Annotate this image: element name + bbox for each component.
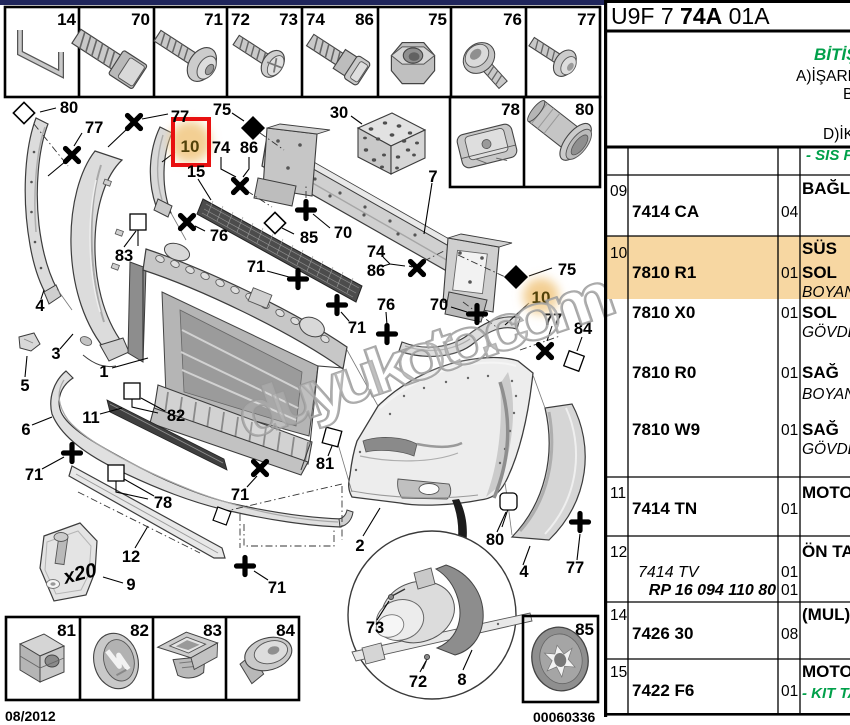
svg-text:01: 01: [781, 501, 798, 518]
svg-text:SAĞ: SAĞ: [802, 363, 839, 382]
svg-text:08: 08: [781, 626, 798, 643]
svg-text:01: 01: [781, 564, 798, 581]
svg-text:BO: BO: [843, 86, 850, 103]
svg-text:7414 CA: 7414 CA: [632, 202, 699, 221]
svg-text:GÖVDE RE: GÖVDE RE: [802, 440, 850, 458]
svg-text:74: 74: [212, 139, 231, 157]
svg-text:30: 30: [330, 104, 348, 122]
svg-text:U9F 7 74A 01A: U9F 7 74A 01A: [611, 3, 770, 29]
svg-text:14: 14: [610, 607, 628, 624]
svg-text:2: 2: [355, 537, 364, 555]
svg-text:A)İŞARET: A)İŞARET: [796, 67, 850, 85]
svg-text:01: 01: [781, 265, 798, 282]
svg-text:09: 09: [610, 183, 627, 200]
svg-text:77: 77: [85, 119, 103, 137]
svg-text:7810 W9: 7810 W9: [632, 420, 700, 439]
svg-text:73: 73: [366, 619, 384, 637]
svg-text:76: 76: [210, 227, 228, 245]
svg-text:75: 75: [428, 10, 447, 29]
svg-text:86: 86: [240, 139, 258, 157]
svg-text:00060336: 00060336: [533, 709, 596, 725]
svg-text:- SIS FAR: - SIS FAR: [806, 147, 850, 164]
svg-text:- KIT TAK: - KIT TAK: [802, 685, 850, 702]
svg-text:7810 R0: 7810 R0: [632, 363, 696, 382]
svg-text:73: 73: [279, 10, 298, 29]
svg-text:12: 12: [610, 544, 627, 561]
svg-text:80: 80: [486, 531, 504, 549]
svg-text:D)İKK: D)İKK: [823, 125, 850, 143]
svg-text:4: 4: [35, 297, 45, 315]
svg-text:7414 TV: 7414 TV: [638, 564, 700, 581]
svg-text:84: 84: [276, 621, 295, 640]
svg-text:71: 71: [268, 579, 286, 597]
svg-text:71: 71: [247, 258, 265, 276]
svg-text:04: 04: [781, 204, 799, 221]
svg-text:8: 8: [457, 671, 466, 689]
svg-text:85: 85: [300, 229, 318, 247]
svg-text:RP 16 094 110 80: RP 16 094 110 80: [649, 582, 776, 599]
svg-text:83: 83: [115, 247, 133, 265]
svg-text:15: 15: [187, 163, 205, 181]
svg-text:01: 01: [781, 365, 798, 382]
svg-text:SOL: SOL: [802, 303, 837, 322]
svg-text:01: 01: [781, 305, 798, 322]
svg-text:77: 77: [577, 10, 596, 29]
svg-text:GÖVDE RE: GÖVDE RE: [802, 323, 850, 341]
svg-text:70: 70: [334, 224, 352, 242]
svg-text:ÖN TAMPON: ÖN TAMPON: [802, 542, 850, 561]
svg-text:5: 5: [20, 377, 29, 395]
svg-text:78: 78: [154, 494, 172, 512]
svg-text:10: 10: [181, 137, 200, 156]
svg-text:80: 80: [575, 100, 594, 119]
svg-text:82: 82: [167, 407, 185, 425]
svg-text:10: 10: [610, 245, 628, 262]
svg-text:14: 14: [57, 10, 76, 29]
svg-text:72: 72: [231, 10, 250, 29]
svg-text:08/2012: 08/2012: [5, 708, 56, 724]
svg-text:86: 86: [355, 10, 374, 29]
svg-text:SOL: SOL: [802, 263, 837, 282]
svg-text:71: 71: [348, 319, 366, 337]
svg-text:01: 01: [781, 582, 798, 599]
svg-text:11: 11: [610, 485, 626, 502]
svg-text:80: 80: [60, 99, 78, 117]
svg-text:MOTORLU: MOTORLU: [802, 483, 850, 502]
svg-text:83: 83: [203, 621, 222, 640]
svg-text:77: 77: [171, 108, 189, 126]
svg-text:7426 30: 7426 30: [632, 624, 693, 643]
svg-text:SAĞ: SAĞ: [802, 420, 839, 439]
svg-text:77: 77: [566, 559, 584, 577]
svg-text:9: 9: [126, 576, 135, 594]
svg-text:7810 R1: 7810 R1: [632, 263, 696, 282]
svg-text:76: 76: [377, 296, 395, 314]
svg-text:86: 86: [367, 262, 385, 280]
svg-text:(MUL) KA: (MUL) KA: [802, 605, 850, 624]
svg-text:1: 1: [99, 363, 108, 381]
svg-text:75: 75: [213, 101, 231, 119]
svg-text:MOTORLU: MOTORLU: [802, 662, 850, 681]
svg-text:6: 6: [21, 421, 30, 439]
svg-text:7: 7: [428, 168, 437, 186]
svg-text:81: 81: [57, 621, 76, 640]
svg-text:82: 82: [130, 621, 149, 640]
svg-text:72: 72: [409, 673, 427, 691]
svg-text:81: 81: [316, 455, 334, 473]
svg-text:4: 4: [519, 563, 529, 581]
svg-text:70: 70: [131, 10, 150, 29]
svg-text:71: 71: [231, 486, 249, 504]
svg-text:BİTİŞ S: BİTİŞ S: [814, 45, 850, 64]
svg-text:01: 01: [781, 422, 798, 439]
svg-text:SÜS: SÜS: [802, 239, 837, 258]
svg-text:7414 TN: 7414 TN: [632, 499, 697, 518]
svg-text:78: 78: [501, 100, 520, 119]
svg-text:3: 3: [51, 345, 60, 363]
svg-text:12: 12: [122, 548, 140, 566]
svg-text:7422 F6: 7422 F6: [632, 681, 694, 700]
svg-text:76: 76: [503, 10, 522, 29]
svg-text:01: 01: [781, 683, 798, 700]
svg-text:BAĞLANTI: BAĞLANTI: [802, 179, 850, 198]
svg-text:74: 74: [306, 10, 325, 29]
svg-text:11: 11: [82, 409, 99, 427]
svg-text:BOYANMIŞ: BOYANMIŞ: [802, 284, 850, 301]
svg-text:BOYANMIŞ: BOYANMIŞ: [802, 386, 850, 403]
svg-text:71: 71: [204, 10, 223, 29]
svg-text:74: 74: [367, 243, 386, 261]
svg-text:15: 15: [610, 664, 627, 681]
svg-text:7810 X0: 7810 X0: [632, 303, 695, 322]
svg-text:71: 71: [25, 466, 43, 484]
